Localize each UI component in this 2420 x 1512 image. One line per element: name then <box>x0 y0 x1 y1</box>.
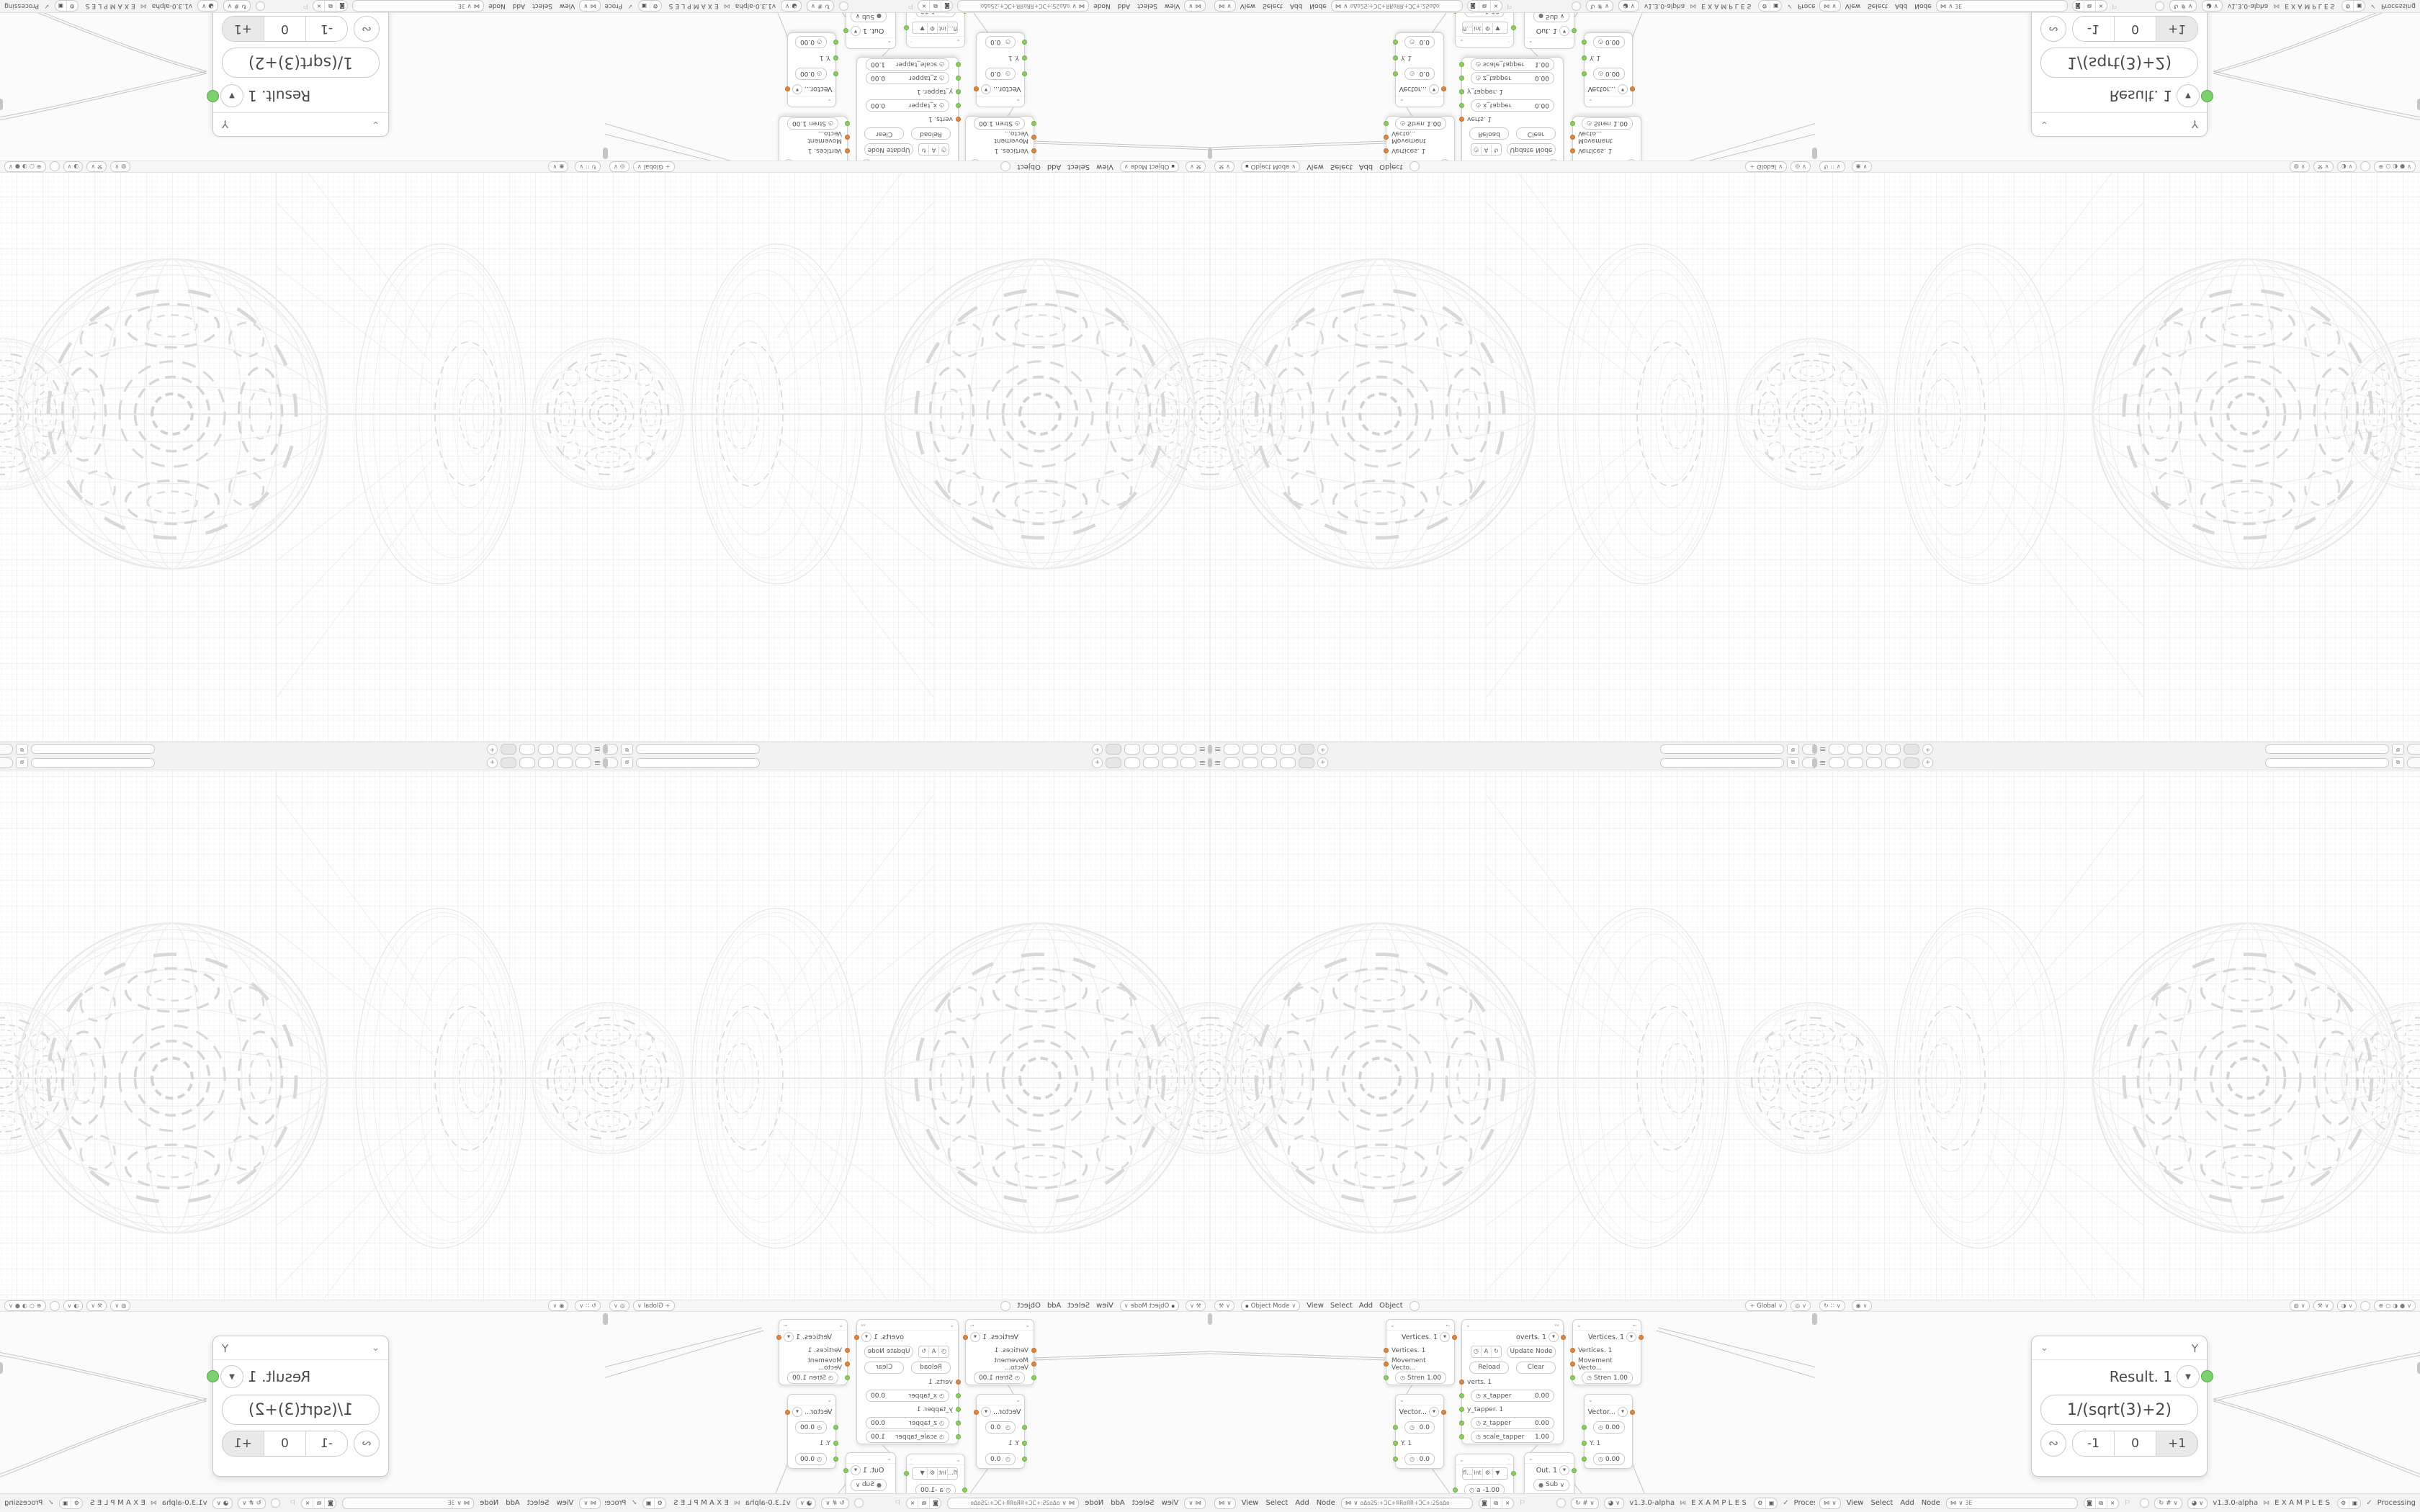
input-socket[interactable] <box>1582 1425 1587 1430</box>
menu-node[interactable]: Node <box>1085 1499 1103 1507</box>
dropdown-icon[interactable]: ▼ <box>1559 26 1569 36</box>
tabbar-search-field[interactable] <box>2265 744 2389 754</box>
node-tree-name-input[interactable]: oΔo2S:+ƆC+ЯRoЯR+ƆC+:2SoΔo <box>1361 1500 1469 1506</box>
expression-input[interactable]: 1/(sqrt(3)+2) <box>222 48 380 78</box>
input-socket[interactable] <box>956 1421 961 1426</box>
refresh-icon[interactable]: ↻ <box>1492 1346 1501 1356</box>
editor-type-selector[interactable]: ⋈ ∨ <box>1184 1498 1206 1509</box>
status-circle-button[interactable] <box>2140 1498 2149 1508</box>
workspace-tab-active[interactable] <box>501 757 516 768</box>
add-tab-button[interactable]: + <box>487 757 498 768</box>
workspace-tab[interactable] <box>1224 757 1240 768</box>
workspace-tab[interactable] <box>1143 757 1159 768</box>
menu-select[interactable]: Select <box>1067 1302 1090 1310</box>
workspace-tab-active[interactable] <box>501 744 516 755</box>
output-socket[interactable] <box>785 1410 790 1415</box>
node-vector-2[interactable]: ⌄ Vector...▼ ◷0.00 Y. 1 ◷0.00 <box>787 1394 836 1469</box>
wireframe-shading-icon[interactable]: ⊕ <box>2378 1302 2383 1309</box>
material-shading-icon[interactable]: ◑ <box>22 1302 27 1309</box>
snap-toggle[interactable]: ↻ # ∨ <box>2169 1 2197 12</box>
snap-toggle[interactable]: ↻ # ∨ <box>807 1 834 12</box>
dropdown-icon[interactable]: ▼ <box>970 1332 980 1342</box>
terminal-icon[interactable]: ▣ <box>643 1498 654 1508</box>
menu-view[interactable]: View <box>560 3 575 10</box>
input-socket[interactable] <box>1022 1441 1027 1446</box>
workspace-tab[interactable] <box>1280 744 1296 755</box>
float-segment[interactable]: fl... <box>1463 23 1473 33</box>
node-tree-name-input[interactable]: oΔo2S:+ƆC+ЯRoЯR+ƆC+:2SoΔo <box>951 1500 1059 1506</box>
copy-icon[interactable]: ⧉ <box>2392 757 2404 768</box>
menu-select[interactable]: Select <box>527 1499 550 1507</box>
plus-one-button[interactable]: +1 <box>223 17 264 41</box>
proportional-edit-toggle[interactable]: ◉ ∨ <box>1852 161 1872 172</box>
workspace-tab-active[interactable] <box>1904 744 1919 755</box>
copy-icon[interactable]: ⧉ <box>929 1 941 11</box>
value-field[interactable]: ◷0.00 <box>1593 1453 1625 1465</box>
transform-orientation-selector[interactable]: + Global ∨ <box>633 1300 675 1311</box>
menu-add[interactable]: Add <box>1359 163 1373 171</box>
shield-icon[interactable]: ◙ <box>324 1498 336 1508</box>
node-vector-1[interactable]: ⌄ Vector...▼ ◷0.0 Y. 1 ◷0.0 <box>1395 32 1444 107</box>
tabbar-edge-pill[interactable] <box>2407 744 2420 755</box>
menu-object[interactable]: Object <box>1379 163 1403 171</box>
node-vertices-2[interactable]: ⌄⌙ Vertices. 1▼ Vertices. 1 Movement Vec… <box>779 1319 848 1385</box>
collapse-icon[interactable]: ⌄ <box>827 1397 832 1403</box>
value-field[interactable]: ◷0.0 <box>1404 68 1435 80</box>
copy-icon[interactable]: ⧉ <box>2096 1498 2107 1508</box>
examples-button[interactable]: EXAMPLES <box>1691 1499 1749 1507</box>
dropdown-icon[interactable]: ▼ <box>1559 1465 1569 1475</box>
tabbar-search-field[interactable] <box>1660 744 1784 754</box>
overlays-toggle[interactable]: ◑ ∨ <box>2337 1300 2357 1311</box>
input-socket[interactable] <box>1384 148 1389 153</box>
node-update[interactable]: ⌄∾ overts. 1▼ ◷A↻ Update Node Reload Cle… <box>1461 57 1564 161</box>
node-convert[interactable]: ⌄· fl...int⚙▼ ◷a-1.00 <box>906 13 965 48</box>
int-segment[interactable]: int <box>1473 23 1483 33</box>
hamburger-menu-icon[interactable]: ≡ <box>1819 745 1826 753</box>
value-field[interactable]: ◷Stren1.00 <box>1395 117 1446 130</box>
solid-shading-icon[interactable]: ○ <box>2385 1302 2390 1309</box>
history-icon[interactable]: ◷ <box>1471 145 1482 155</box>
shield-icon[interactable]: ◙ <box>1479 1498 1491 1508</box>
copy-icon[interactable]: ⧉ <box>1787 744 1799 755</box>
area-handle[interactable] <box>1812 758 1817 768</box>
output-socket[interactable] <box>843 29 848 34</box>
workspace-tab[interactable] <box>1242 744 1258 755</box>
header-circle-button[interactable] <box>1000 1301 1010 1311</box>
workspace-tab[interactable] <box>538 757 554 768</box>
add-tab-button[interactable]: + <box>1317 757 1328 768</box>
node-editor[interactable]: ⌄⌙ Vertices. 1▼ Vertices. 1 Movement Vec… <box>605 13 1210 161</box>
result-output-socket[interactable] <box>207 90 219 102</box>
zero-button[interactable]: 0 <box>2115 17 2156 41</box>
history-icon[interactable]: ◷ <box>1471 1346 1482 1356</box>
shield-icon[interactable]: ◙ <box>1468 1 1479 11</box>
editor-type-selector[interactable]: ⋈ ∨ <box>1184 1 1206 12</box>
input-socket[interactable] <box>956 1407 961 1412</box>
hamburger-menu-icon[interactable]: ≡ <box>1199 745 1206 753</box>
value-field[interactable]: ◷0.0 <box>1404 1453 1435 1465</box>
input-socket[interactable] <box>956 62 961 67</box>
value-field[interactable]: ◷a-1.00 <box>915 13 956 17</box>
node-out[interactable]: ⌄ Out. 1▼ ●Sub∨ ◷0.00 y. 1 <box>846 13 896 49</box>
node-update[interactable]: ⌄∾ overts. 1▼ ◷A↻ Update Node Reload Cle… <box>856 57 959 161</box>
overlays-toggle[interactable]: ◑ ∨ <box>63 1300 84 1311</box>
workspace-tab[interactable] <box>575 757 591 768</box>
input-socket[interactable] <box>1393 1425 1398 1430</box>
gear-icon[interactable]: ⚙ <box>927 1468 937 1478</box>
input-socket[interactable] <box>845 135 850 140</box>
expression-input[interactable]: 1/(sqrt(3)+2) <box>2040 1395 2198 1425</box>
collapse-icon[interactable]: ⌄ <box>1466 1322 1471 1328</box>
history-icon[interactable]: ◷ <box>938 1346 949 1356</box>
input-socket[interactable] <box>1031 1362 1036 1367</box>
workspace-tab[interactable] <box>557 744 573 755</box>
node-tree-name-input[interactable]: oΔo2S:+ƆC+ЯRoЯR+ƆC+:2SoΔo <box>962 3 1070 9</box>
input-socket[interactable] <box>956 1393 961 1398</box>
dropdown-icon[interactable]: ▼ <box>861 1332 871 1342</box>
view-object-types[interactable]: ◍ ∨ <box>110 161 130 172</box>
menu-add[interactable]: Add <box>1290 3 1302 10</box>
area-handle[interactable] <box>2417 99 2420 110</box>
workspace-tab-active[interactable] <box>1904 757 1919 768</box>
input-socket[interactable] <box>1022 55 1027 60</box>
workspace-tab-active[interactable] <box>1106 757 1121 768</box>
status-circle-button[interactable] <box>839 1 848 11</box>
value-field[interactable]: ◷Stren1.00 <box>974 117 1025 130</box>
zero-button[interactable]: 0 <box>2115 1431 2156 1456</box>
snapping-selector[interactable]: ◎ ∨ <box>1791 1300 1811 1311</box>
output-socket[interactable] <box>1639 1335 1644 1340</box>
editor-type-selector[interactable]: ⚒ ∨ <box>1186 161 1206 172</box>
view-object-types[interactable]: ◍ ∨ <box>110 1300 130 1311</box>
value-field[interactable]: ◷0.00 <box>1593 1421 1625 1434</box>
pin-icon[interactable]: ⚐ <box>1520 1500 1525 1507</box>
collapse-icon[interactable]: ⌄ <box>956 39 961 45</box>
workspace-tab[interactable] <box>1124 757 1140 768</box>
area-handle[interactable] <box>1210 744 1212 754</box>
dropdown-icon[interactable]: ▼ <box>784 159 794 161</box>
menu-select[interactable]: Select <box>1132 1499 1155 1507</box>
editor-type-selector[interactable]: ⋈ ∨ <box>579 1 601 12</box>
value-field[interactable]: ◷0.00 <box>795 1453 827 1465</box>
input-socket[interactable] <box>845 121 850 126</box>
type-segments[interactable]: fl...int⚙▼ <box>912 1467 958 1480</box>
tabbar-edge-pill[interactable] <box>0 757 13 768</box>
shield-icon[interactable]: ◙ <box>336 1 347 11</box>
node-vector-1[interactable]: ⌄ Vector...▼ ◷0.0 Y. 1 ◷0.0 <box>1395 1394 1444 1469</box>
input-socket[interactable] <box>833 55 838 60</box>
wireframe-shading-icon[interactable]: ⊕ <box>2378 163 2383 170</box>
value-field[interactable]: ◷x_tapper0.00 <box>866 99 949 112</box>
input-socket[interactable] <box>1022 40 1027 45</box>
input-socket[interactable] <box>1570 148 1575 153</box>
refresh-icon[interactable]: ↻ <box>919 1346 928 1356</box>
collapse-icon[interactable]: ⌄ <box>372 120 380 130</box>
dropdown-icon[interactable]: ▼ <box>784 1332 794 1342</box>
reload-button[interactable]: Reload <box>1469 128 1509 140</box>
node-tree-selector[interactable]: ⋈ ∨ oΔo2S:+ƆC+ЯRoЯR+ƆC+:2SoΔo <box>957 1 1089 12</box>
menu-view[interactable]: View <box>1307 1302 1324 1310</box>
tabbar-search-field[interactable] <box>636 758 760 768</box>
copy-icon[interactable]: ⧉ <box>621 757 633 768</box>
output-socket[interactable] <box>776 1335 781 1340</box>
reload-button[interactable]: Reload <box>1469 1362 1509 1374</box>
overlay-toggle[interactable]: ◕ ∨ <box>1604 1498 1625 1509</box>
gear-icon[interactable]: ⚙ <box>654 1498 665 1508</box>
pin-icon[interactable]: ⚐ <box>302 3 308 10</box>
area-handle[interactable] <box>1208 744 1210 754</box>
dropdown-icon[interactable]: ▼ <box>1618 1407 1628 1417</box>
snapping-toggle[interactable]: ↻ ∷ ∨ <box>575 1300 601 1311</box>
collapse-icon[interactable]: ⌄ <box>2040 1343 2048 1354</box>
mode-selector[interactable]: ▪ Object Mode ∨ <box>1120 1300 1179 1311</box>
float-segment[interactable]: fl... <box>947 1468 957 1478</box>
type-segments[interactable]: fl...int⚙▼ <box>1462 1467 1508 1480</box>
menu-add[interactable]: Add <box>1118 3 1130 10</box>
overlay-toggle[interactable]: ◕ ∨ <box>2202 1 2223 12</box>
dropdown-icon[interactable]: ▼ <box>918 1468 927 1478</box>
output-socket[interactable] <box>1441 1410 1446 1415</box>
header-circle-button[interactable] <box>50 162 60 172</box>
input-socket[interactable] <box>1459 103 1464 108</box>
update-node-button[interactable]: Update Node <box>864 144 913 156</box>
input-socket[interactable] <box>833 71 838 76</box>
node-editor[interactable]: ⌄ ⅄ Result. 1 ▼ 1/(sqrt(3)+2) ∾ -1 0 <box>0 13 605 161</box>
status-circle-button[interactable] <box>2155 1 2164 11</box>
input-socket[interactable] <box>1582 71 1587 76</box>
dropdown-icon[interactable]: ▼ <box>220 84 243 107</box>
overlays-toggle[interactable]: ◑ ∨ <box>63 161 84 172</box>
copy-icon[interactable]: ⧉ <box>2084 1 2096 11</box>
workspace-tab[interactable] <box>1847 744 1863 755</box>
dropdown-icon[interactable]: ▼ <box>1440 159 1450 161</box>
input-socket[interactable] <box>956 1380 961 1385</box>
input-socket[interactable] <box>845 148 850 153</box>
dropdown-icon[interactable]: ▼ <box>2177 84 2200 107</box>
node-tree-selector[interactable]: ⋈ ∨ 3E <box>1936 1 2068 12</box>
menu-select[interactable]: Select <box>532 3 552 10</box>
output-socket[interactable] <box>1630 1410 1635 1415</box>
result-output-socket[interactable] <box>207 1370 219 1382</box>
menu-select[interactable]: Select <box>1067 163 1090 171</box>
menu-node[interactable]: Node <box>488 3 506 10</box>
terminal-icon[interactable]: ▣ <box>639 1 650 11</box>
update-icon-group[interactable]: ◷A↻ <box>918 1346 949 1358</box>
material-shading-icon[interactable]: ◑ <box>2393 163 2398 170</box>
collapse-icon[interactable]: ⌄ <box>1528 1455 1533 1462</box>
editor-type-selector[interactable]: ⋈ ∨ <box>1819 1498 1841 1509</box>
input-socket[interactable] <box>1459 1407 1464 1412</box>
editor-type-selector[interactable]: ⚒ ∨ <box>1186 1300 1206 1311</box>
input-socket[interactable] <box>1384 121 1389 126</box>
value-field[interactable]: ◷Stren1.00 <box>1582 1372 1633 1384</box>
value-field[interactable]: ◷0.0 <box>1404 1421 1435 1434</box>
overlays-toggle[interactable]: ◑ ∨ <box>2337 161 2357 172</box>
input-socket[interactable] <box>1459 76 1464 81</box>
plus-one-button[interactable]: +1 <box>223 1431 264 1456</box>
menu-node[interactable]: Node <box>1317 1499 1335 1507</box>
solid-shading-icon[interactable]: ○ <box>2385 163 2390 170</box>
update-icon-group[interactable]: ◷A↻ <box>1471 1346 1502 1358</box>
update-node-button[interactable]: Update Node <box>1507 144 1556 156</box>
node-editor[interactable]: ⌄ ⅄ Result. 1 ▼ 1/(sqrt(3)+2) ∾ -1 0 <box>0 1312 605 1493</box>
workspace-tab[interactable] <box>575 744 591 755</box>
input-socket[interactable] <box>1031 135 1036 140</box>
terminal-icon[interactable]: ▣ <box>2354 1 2365 11</box>
overlay-toggle[interactable]: ◕ ∨ <box>2187 1498 2208 1509</box>
status-circle-button[interactable] <box>1556 1498 1566 1508</box>
area-handle[interactable] <box>603 1313 608 1325</box>
dropdown-icon[interactable]: ▼ <box>981 1407 991 1417</box>
workspace-tab[interactable] <box>1829 757 1845 768</box>
editor-type-selector[interactable]: ⋈ ∨ <box>1819 1 1841 12</box>
area-handle[interactable] <box>1210 148 1212 159</box>
value-field[interactable]: ◷z_tapper0.00 <box>1471 1417 1554 1429</box>
collapse-icon[interactable]: ⌄ <box>949 1322 954 1328</box>
workspace-tab[interactable] <box>519 757 535 768</box>
node-vertices-1[interactable]: ⌄⌙ Vertices. 1▼ Vertices. 1 Movement Vec… <box>965 116 1034 161</box>
shading-mode-group[interactable]: ⊕ ○ ◑ ● ∨ <box>4 161 46 172</box>
dropdown-icon[interactable]: ▼ <box>1493 1468 1502 1478</box>
value-field[interactable]: ◷0.0 <box>985 36 1016 48</box>
shield-icon[interactable]: ◙ <box>2084 1498 2096 1508</box>
copy-icon[interactable]: ⧉ <box>1479 1 1491 11</box>
examples-button[interactable]: EXAMPLES <box>84 3 135 10</box>
pin-icon[interactable]: ⚐ <box>895 1500 900 1507</box>
input-socket[interactable] <box>1582 1441 1587 1446</box>
operation-dropdown[interactable]: ●Sub∨ <box>851 1479 887 1491</box>
shield-icon[interactable]: ◙ <box>941 1 952 11</box>
header-circle-button[interactable] <box>1410 162 1420 172</box>
copy-icon[interactable]: ⧉ <box>1787 757 1799 768</box>
output-socket[interactable] <box>1572 29 1577 34</box>
dropdown-icon[interactable]: ▼ <box>861 159 871 161</box>
value-field[interactable]: ◷Stren1.00 <box>1395 1372 1446 1384</box>
input-socket[interactable] <box>1031 1375 1036 1380</box>
input-socket[interactable] <box>1393 55 1398 60</box>
tabbar-search-field[interactable] <box>636 744 760 754</box>
dropdown-icon[interactable]: ▼ <box>918 23 927 33</box>
value-field[interactable]: ◷z_tapper0.00 <box>866 1417 949 1429</box>
hamburger-menu-icon[interactable]: ≡ <box>1214 759 1221 767</box>
input-socket[interactable] <box>833 1425 838 1430</box>
add-tab-button[interactable]: + <box>1092 757 1103 768</box>
snap-toggle[interactable]: ↻ # ∨ <box>1571 1498 1598 1509</box>
workspace-tab[interactable] <box>1280 757 1296 768</box>
menu-object[interactable]: Object <box>1017 163 1041 171</box>
examples-button[interactable]: EXAMPLES <box>671 1499 729 1507</box>
header-circle-button[interactable] <box>50 1301 60 1311</box>
proportional-edit-toggle[interactable]: ◉ ∨ <box>549 1300 569 1311</box>
dropdown-icon[interactable]: ▼ <box>1429 1407 1439 1417</box>
node-tree-selector[interactable]: ⋈ ∨ oΔo2S:+ƆC+ЯRoЯR+ƆC+:2SoΔo <box>1341 1498 1473 1509</box>
result-node[interactable]: ⌄ ⅄ Result. 1 ▼ 1/(sqrt(3)+2) ∾ -1 0 <box>2031 13 2208 137</box>
editor-type-selector[interactable]: ⋈ ∨ <box>1214 1498 1236 1509</box>
close-icon[interactable]: × <box>2096 1 2107 11</box>
input-socket[interactable] <box>1031 148 1036 153</box>
snapping-toggle[interactable]: ↻ ∷ ∨ <box>1819 161 1845 172</box>
collapse-icon[interactable]: ⌄ <box>1528 40 1533 47</box>
node-tree-name-input[interactable]: 3E <box>1955 3 2063 9</box>
node-tree-name-input[interactable]: 3E <box>346 1500 454 1506</box>
node-tree-name-input[interactable]: oΔo2S:+ƆC+ЯRoЯR+ƆC+:2SoΔo <box>1350 3 1458 9</box>
mode-selector[interactable]: ▪ Object Mode ∨ <box>1120 161 1179 172</box>
node-vector-1[interactable]: ⌄ Vector...▼ ◷0.0 Y. 1 ◷0.0 <box>976 1394 1025 1469</box>
float-segment[interactable]: fl... <box>947 23 957 33</box>
input-socket[interactable] <box>956 76 961 81</box>
add-tab-button[interactable]: + <box>487 744 498 755</box>
dropdown-icon[interactable]: ▼ <box>1429 84 1439 94</box>
value-field[interactable]: ◷scale_tapper1.00 <box>1471 1431 1554 1443</box>
transform-orientation-selector[interactable]: + Global ∨ <box>1745 161 1787 172</box>
value-field[interactable]: ◷x_tapper0.00 <box>1471 99 1554 112</box>
value-field[interactable]: ◷0.00 <box>795 36 827 48</box>
terminal-icon[interactable]: ▣ <box>60 1498 71 1508</box>
collapse-icon[interactable]: ⌄ <box>1399 1397 1404 1403</box>
view-object-types[interactable]: ◍ ∨ <box>2290 161 2310 172</box>
tabbar-search-field[interactable] <box>1660 758 1784 768</box>
update-icon-group[interactable]: ◷A↻ <box>918 144 949 156</box>
menu-add[interactable]: Add <box>1895 3 1907 10</box>
workspace-tab[interactable] <box>1162 744 1178 755</box>
int-segment[interactable]: int <box>1473 1468 1483 1478</box>
add-tab-button[interactable]: + <box>1922 757 1933 768</box>
menu-view[interactable]: View <box>1162 1499 1179 1507</box>
collapse-icon[interactable]: ⌄ <box>372 1343 380 1354</box>
view-object-types[interactable]: ◍ ∨ <box>2290 1300 2310 1311</box>
refresh-icon[interactable]: ↻ <box>1492 145 1501 155</box>
dropdown-icon[interactable]: ▼ <box>981 84 991 94</box>
collapse-icon[interactable]: ⌄ <box>1390 1322 1395 1328</box>
plus-one-button[interactable]: +1 <box>2156 1431 2197 1456</box>
area-handle[interactable] <box>1208 758 1210 768</box>
workspace-tab-active[interactable] <box>1299 744 1314 755</box>
input-socket[interactable] <box>833 40 838 45</box>
status-circle-button[interactable] <box>1572 1 1581 11</box>
result-node[interactable]: ⌄ ⅄ Result. 1 ▼ 1/(sqrt(3)+2) ∾ -1 0 <box>2031 1336 2208 1477</box>
node-vertices-1[interactable]: ⌄⌙ Vertices. 1▼ Vertices. 1 Movement Vec… <box>1386 1319 1455 1385</box>
value-field[interactable]: ◷0.00 <box>795 1421 827 1434</box>
node-tree-selector[interactable]: ⋈ ∨ 3E <box>342 1498 474 1509</box>
area-handle[interactable] <box>2417 1362 2420 1374</box>
clear-button[interactable]: Clear <box>864 1362 904 1374</box>
editor-type-selector[interactable]: ⋈ ∨ <box>1214 1 1236 12</box>
auto-icon[interactable]: A <box>1482 1346 1492 1356</box>
node-vertices-1[interactable]: ⌄⌙ Vertices. 1▼ Vertices. 1 Movement Vec… <box>965 1319 1034 1385</box>
collapse-icon[interactable]: ⌄ <box>887 40 892 47</box>
input-socket[interactable] <box>1393 1441 1398 1446</box>
status-circle-button[interactable] <box>271 1498 280 1508</box>
hamburger-menu-icon[interactable]: ≡ <box>594 745 601 753</box>
menu-add[interactable]: Add <box>1047 163 1061 171</box>
menu-select[interactable]: Select <box>1265 1499 1288 1507</box>
output-socket[interactable] <box>1441 87 1446 92</box>
area-handle[interactable] <box>1812 744 1817 754</box>
area-handle[interactable] <box>1208 1313 1210 1325</box>
link-icon-button[interactable]: ∾ <box>354 16 380 42</box>
collapse-icon[interactable]: ⌄ <box>956 1457 961 1463</box>
gear-icon[interactable]: ⚙ <box>927 23 937 33</box>
menu-select[interactable]: Select <box>1870 1499 1893 1507</box>
value-field[interactable]: ◷Stren1.00 <box>787 1372 838 1384</box>
node-editor[interactable]: ⌄⌙ Vertices. 1▼ Vertices. 1 Movement Vec… <box>605 1312 1210 1493</box>
examples-button[interactable]: EXAMPLES <box>2275 1499 2332 1507</box>
collapse-icon[interactable]: ⌄ <box>1588 99 1593 105</box>
close-icon[interactable]: × <box>302 1498 313 1508</box>
output-socket[interactable] <box>854 1335 859 1340</box>
node-vertices-1[interactable]: ⌄⌙ Vertices. 1▼ Vertices. 1 Movement Vec… <box>1386 116 1455 161</box>
